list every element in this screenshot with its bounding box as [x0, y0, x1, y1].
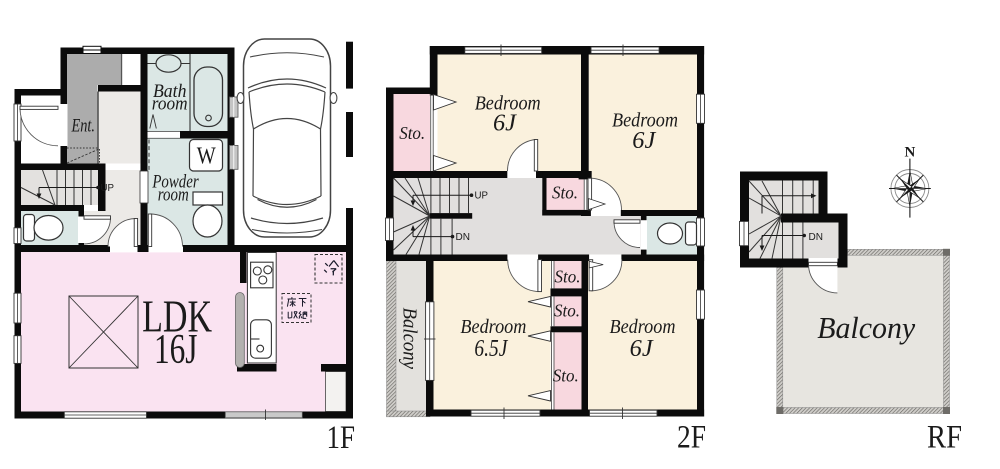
svg-text:Sto.: Sto.	[555, 267, 581, 287]
svg-text:UP: UP	[475, 191, 489, 202]
svg-text:UP: UP	[101, 183, 115, 194]
svg-text:Sto.: Sto.	[399, 123, 425, 143]
svg-text:2F: 2F	[677, 420, 706, 456]
svg-text:1F: 1F	[327, 420, 356, 456]
svg-text:room: room	[158, 184, 189, 205]
svg-text:Balcony: Balcony	[399, 308, 421, 370]
svg-text:RF: RF	[927, 420, 962, 456]
svg-text:Bedroom: Bedroom	[460, 316, 526, 338]
svg-text:W: W	[197, 144, 216, 170]
svg-text:Sto.: Sto.	[553, 366, 579, 386]
svg-text:DN: DN	[809, 232, 824, 243]
svg-text:room: room	[152, 94, 188, 115]
svg-text:N: N	[904, 145, 915, 161]
svg-text:Balcony: Balcony	[817, 310, 915, 345]
svg-text:Bedroom: Bedroom	[610, 316, 676, 338]
svg-text:DN: DN	[456, 232, 471, 243]
svg-text:16J: 16J	[154, 327, 198, 373]
svg-text:Ent.: Ent.	[71, 117, 95, 137]
svg-text:6J: 6J	[493, 111, 517, 137]
svg-text:Sto.: Sto.	[554, 301, 580, 321]
svg-text:6.5J: 6.5J	[474, 336, 508, 362]
svg-text:Sto.: Sto.	[552, 183, 578, 203]
svg-text:6J: 6J	[630, 336, 654, 362]
svg-text:6J: 6J	[632, 128, 656, 154]
